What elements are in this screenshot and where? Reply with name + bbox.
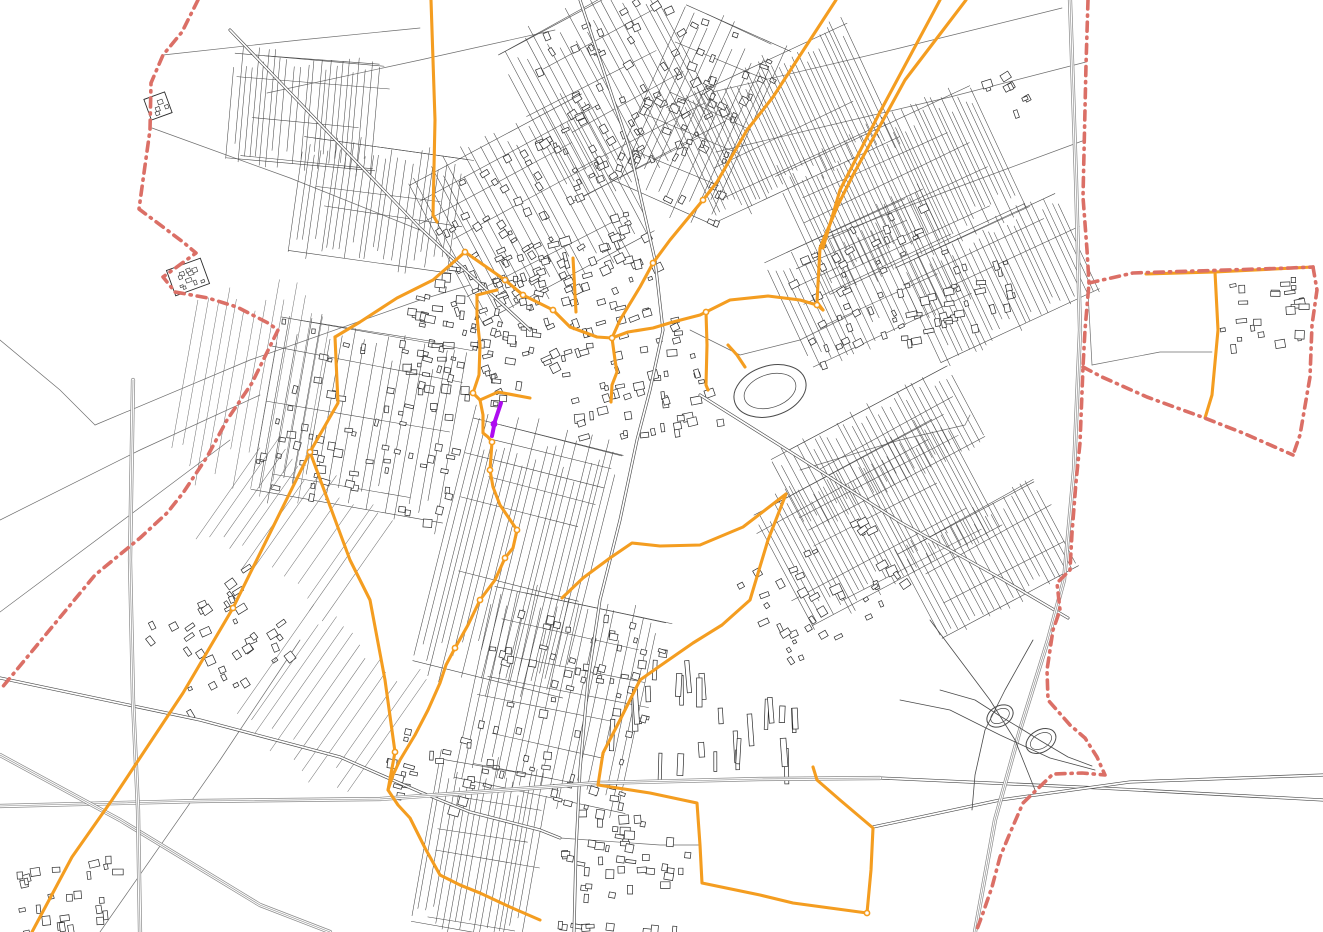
road-node <box>489 439 494 444</box>
parcel-cluster <box>166 258 209 296</box>
parcel-cluster <box>196 430 395 625</box>
layer-highlighted-segment <box>491 403 501 436</box>
parcel-cluster <box>138 563 304 720</box>
parcel-cluster <box>735 508 919 670</box>
parcel-cluster <box>396 261 548 412</box>
city-map-svg <box>0 0 1323 932</box>
highlight-node <box>491 421 498 428</box>
parcel-cluster <box>228 598 429 804</box>
road-node <box>307 449 312 454</box>
road-node <box>502 555 507 560</box>
road-node <box>514 527 519 532</box>
map-viewport[interactable]: Cadastral city plan: dense black parcel … <box>0 0 1323 932</box>
parcel-cluster <box>144 92 172 120</box>
road-node <box>814 302 819 307</box>
road-node <box>700 197 705 202</box>
road-node <box>470 390 475 395</box>
parcel-cluster <box>743 406 1005 635</box>
road-node <box>452 645 457 650</box>
road-node <box>487 467 492 472</box>
road-node <box>502 277 507 282</box>
parcel-cluster <box>13 854 131 932</box>
parcel-cluster <box>771 77 1029 302</box>
road-node <box>462 249 467 254</box>
road-node <box>703 309 708 314</box>
road-node <box>550 307 555 312</box>
road-node <box>864 910 869 915</box>
parcel-cluster <box>409 747 557 932</box>
parcel-cluster <box>243 306 480 536</box>
road-node <box>609 335 614 340</box>
road-node <box>230 605 235 610</box>
layer-road-nodes <box>230 197 869 915</box>
road-node <box>392 749 397 754</box>
parcel-cluster <box>556 316 724 458</box>
layer-main-roads <box>32 0 1313 932</box>
parcel-cluster <box>287 129 475 281</box>
parcel-cluster <box>1217 276 1312 354</box>
road-node <box>520 292 525 297</box>
parcel-cluster <box>981 66 1036 126</box>
road-node <box>477 597 482 602</box>
road-node <box>650 260 655 265</box>
layer-parcels-and-buildings <box>13 0 1312 932</box>
